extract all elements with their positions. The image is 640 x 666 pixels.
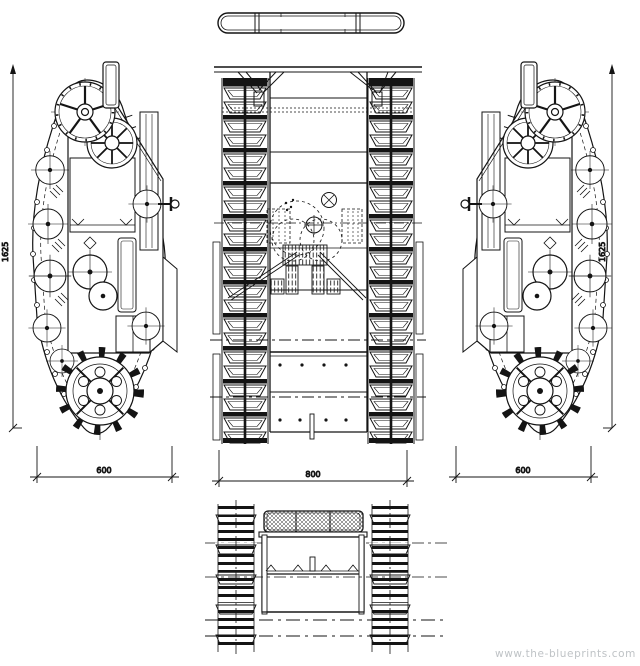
plan-view [210,13,426,444]
front-track-left [215,500,257,657]
side-view-right [461,62,612,440]
front-view [205,500,450,657]
front-track-right [369,500,411,657]
blueprint-canvas: 1625 1625 600 800 600 www.the-blueprints… [0,0,640,666]
watermark-text: www.the-blueprints.com [495,648,636,660]
dimension-left-width: 600 [30,446,179,483]
plan-track-left [222,78,268,444]
plan-track-right [368,78,414,444]
engine-detail [228,193,366,301]
dim-left-width-label: 600 [96,466,111,475]
dimension-left-height: 1625 [1,64,22,432]
dim-right-width-label: 600 [515,466,530,475]
side-view-left [28,62,179,440]
blueprint-page: 1625 1625 600 800 600 www.the-blueprints… [0,0,640,666]
skid-rail [218,13,404,33]
dimension-plan-width: 800 [212,450,414,487]
dim-plan-width-label: 800 [305,470,320,479]
radiator-grille [264,511,363,532]
dim-right-height-label: 1625 [598,242,607,262]
dimension-right-width: 600 [449,446,598,483]
dim-left-height-label: 1625 [1,242,10,262]
